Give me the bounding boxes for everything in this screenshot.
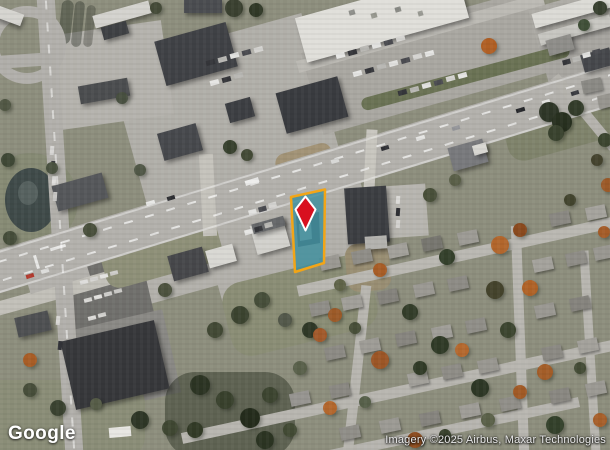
parcel-overlay-layer (0, 0, 610, 450)
google-logo[interactable]: Google (8, 423, 76, 445)
satellite-map[interactable]: Google Imagery ©2025 Airbus, Maxar Techn… (0, 0, 610, 450)
imagery-attribution: Imagery ©2025 Airbus, Maxar Technologies (385, 434, 606, 446)
